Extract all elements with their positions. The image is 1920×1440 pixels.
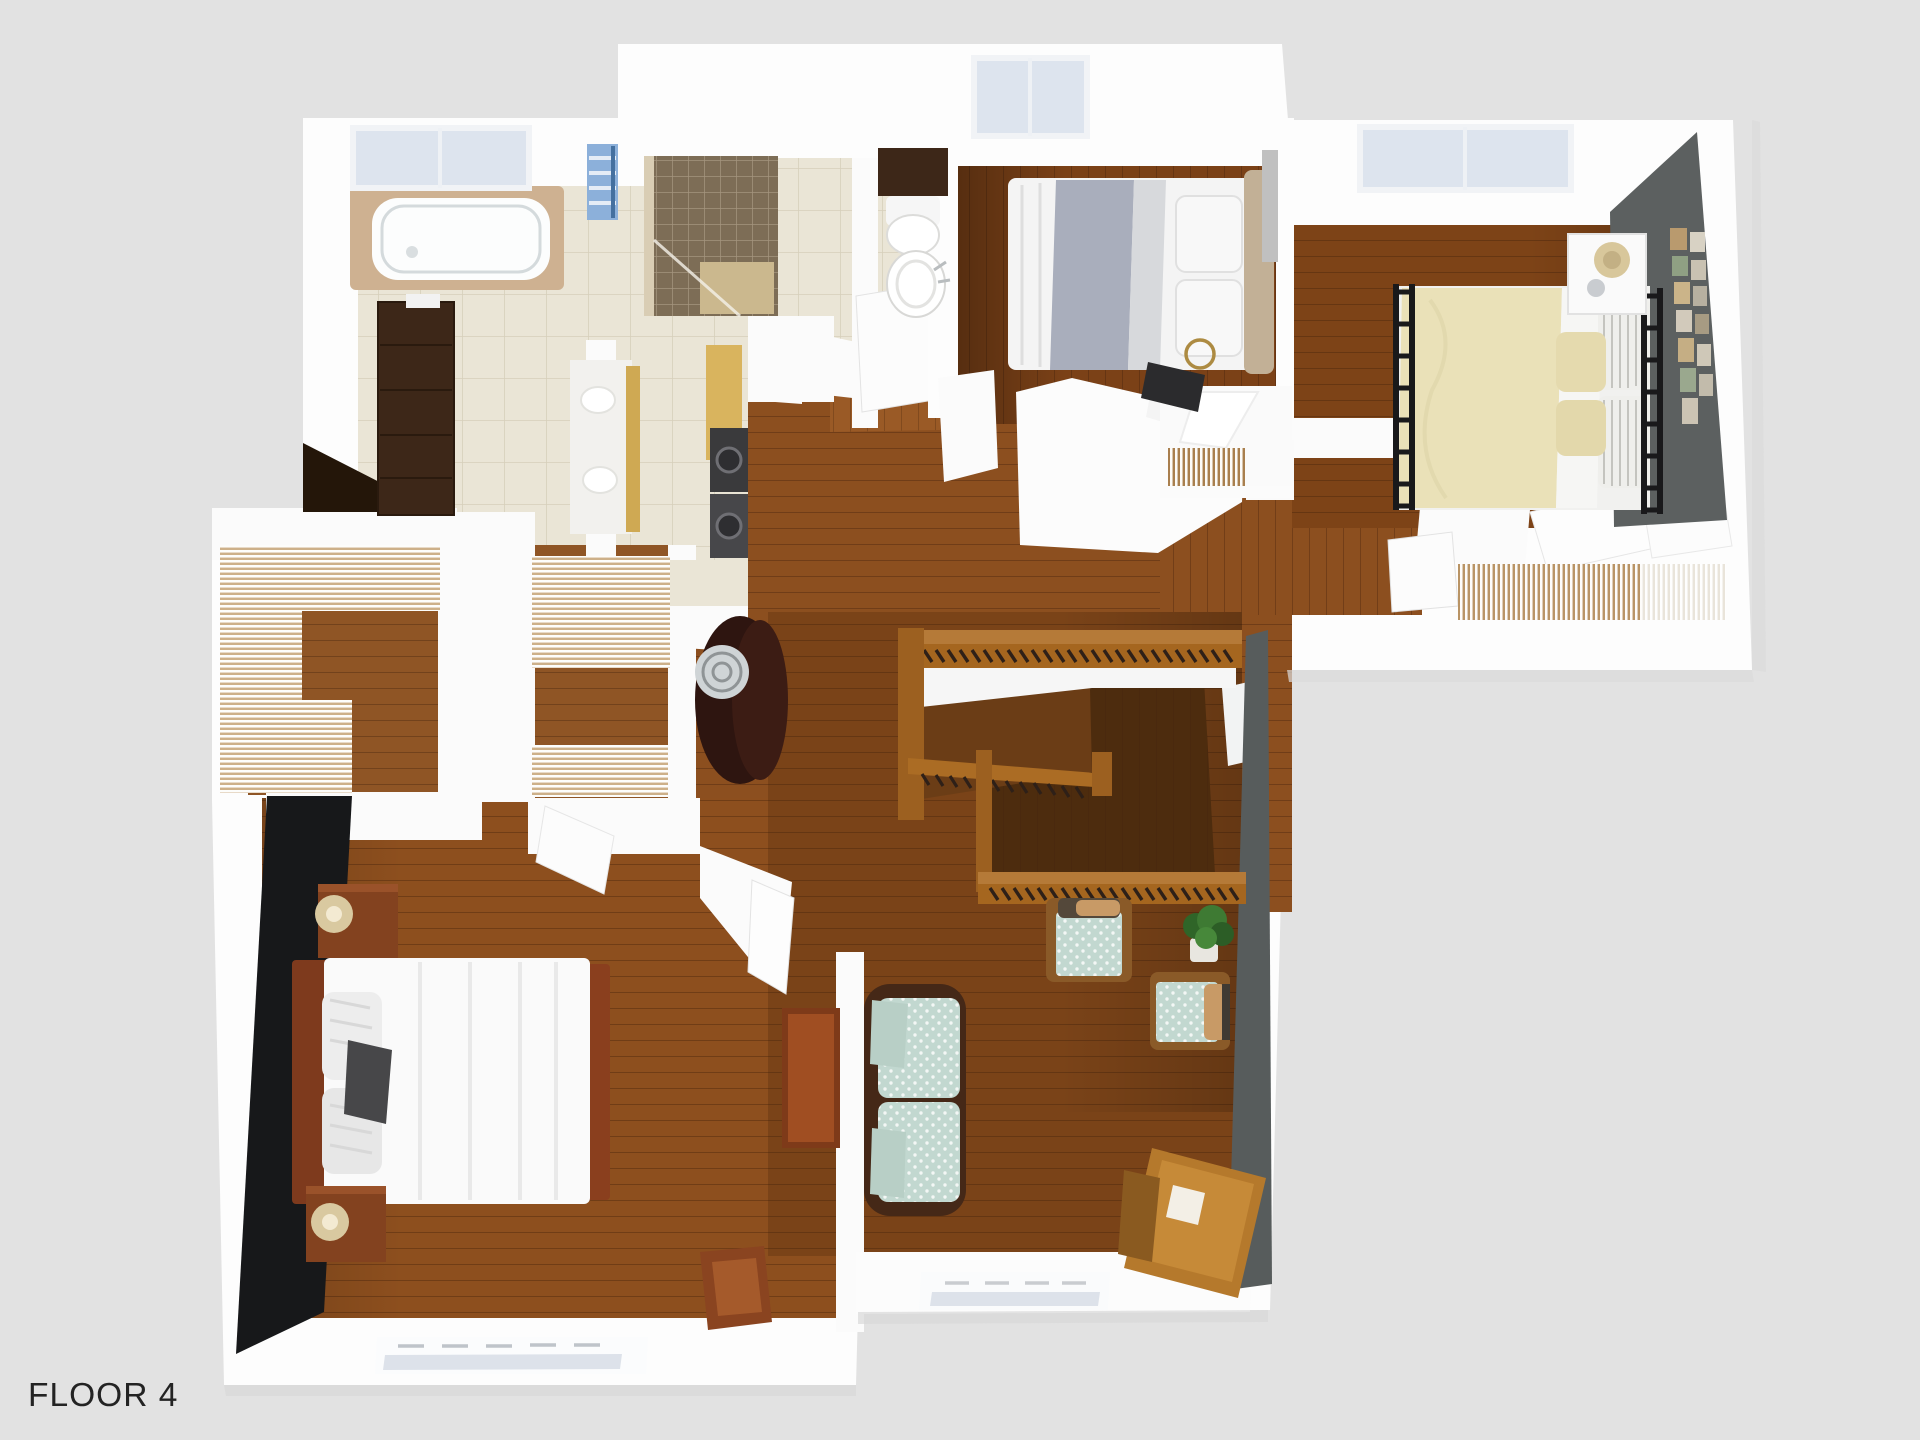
svg-text:FLOOR 4: FLOOR 4	[28, 1377, 178, 1414]
